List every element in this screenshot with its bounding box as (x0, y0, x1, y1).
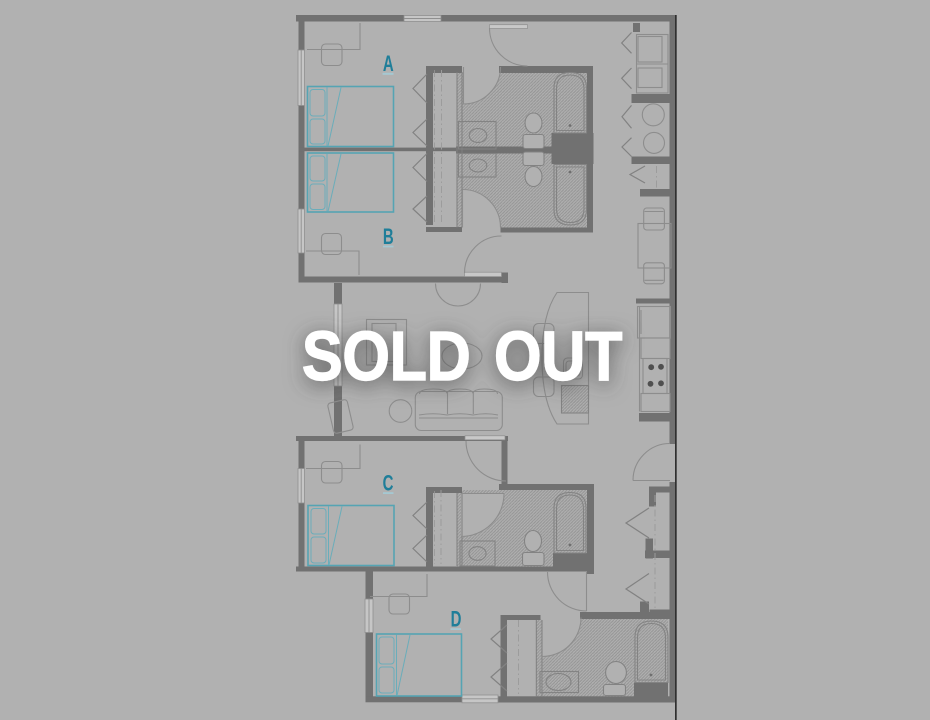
svg-text:A: A (383, 51, 394, 76)
svg-text:B: B (383, 224, 394, 249)
svg-text:D: D (451, 607, 462, 632)
svg-text:C: C (383, 471, 394, 496)
svg-text:SOLD OUT: SOLD OUT (302, 317, 623, 395)
